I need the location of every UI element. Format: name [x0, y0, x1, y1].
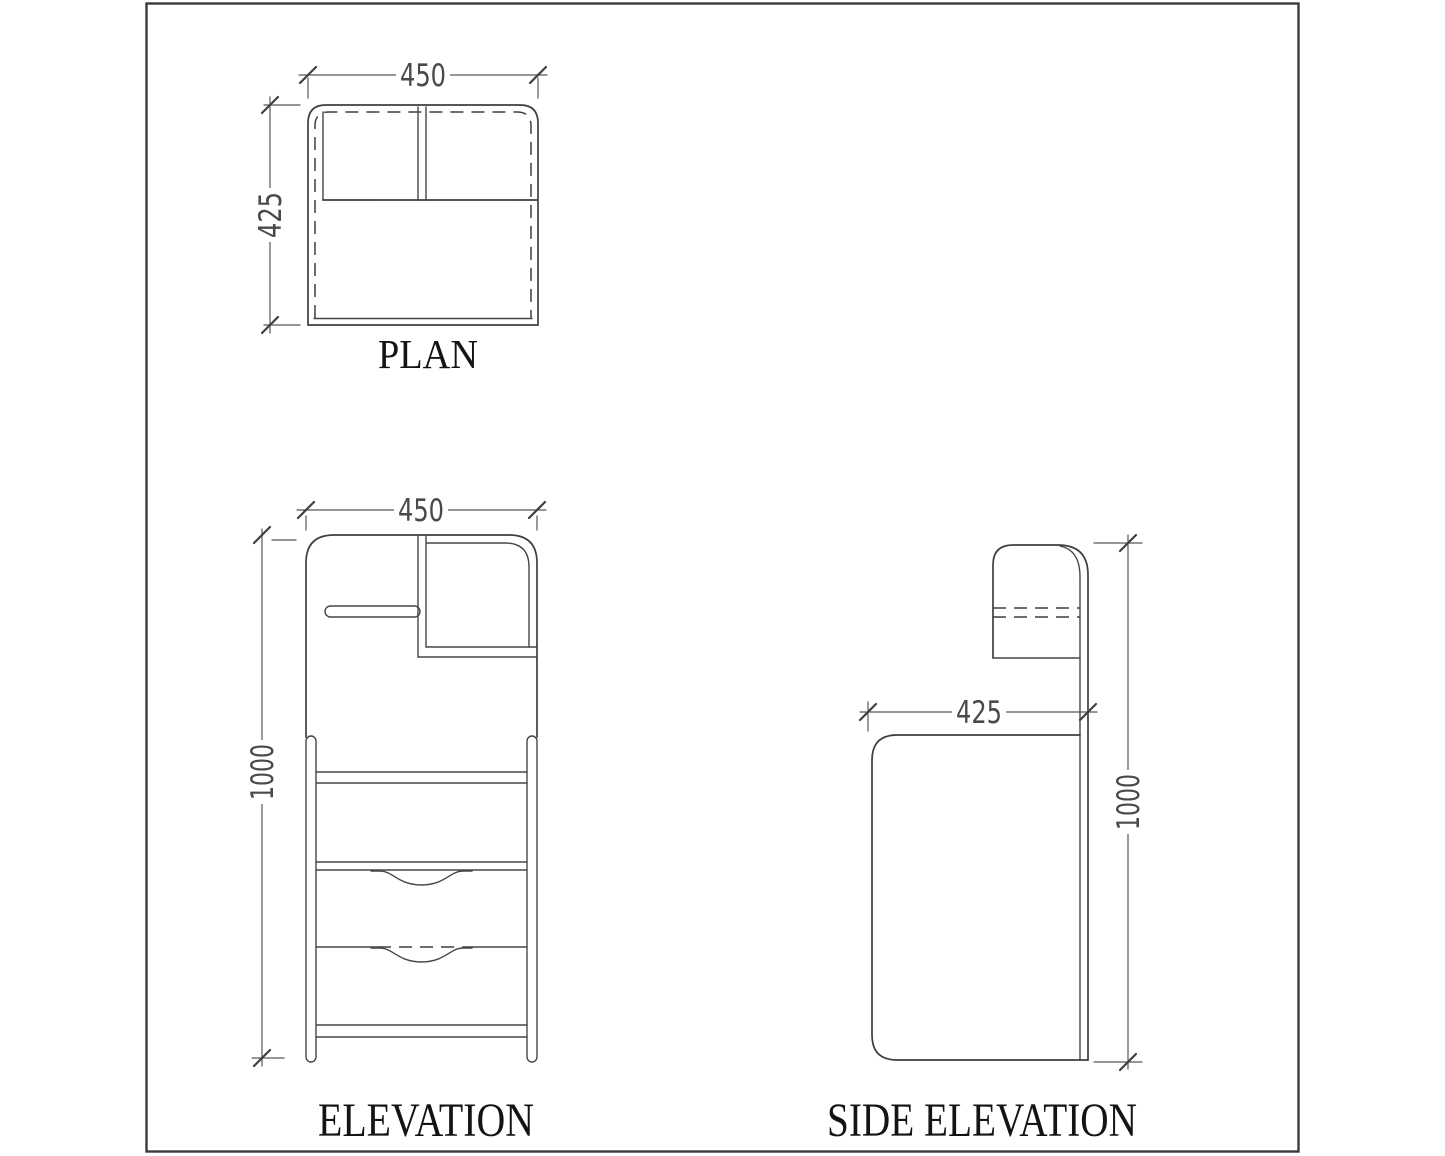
elevation-right-post [527, 736, 537, 1062]
elevation-view: 450 1000 ELEVATION [245, 493, 546, 1147]
elevation-view-label: ELEVATION [318, 1094, 534, 1147]
side-upper-box-outline [993, 545, 1088, 1060]
plan-width-dim-text: 450 [400, 58, 446, 94]
side-depth-dimension: 425 [860, 695, 1097, 731]
plan-outer-outline [308, 105, 538, 325]
plan-hidden-outline [315, 112, 531, 318]
elevation-right-box-inner [426, 543, 529, 647]
elevation-height-dimension: 1000 [245, 527, 296, 1066]
side-hidden-shelf-lines [993, 608, 1080, 617]
elevation-top-shelf [316, 772, 527, 783]
elevation-upper-outline [306, 535, 537, 737]
elevation-bottom-shelf [316, 1025, 527, 1037]
plan-centre-divider [418, 107, 426, 200]
side-lower-body-outline [872, 735, 1088, 1060]
side-elevation-view: 425 1000 SIDE ELEVATION [827, 535, 1147, 1147]
side-elevation-view-label: SIDE ELEVATION [827, 1094, 1137, 1147]
elevation-width-dim-text: 450 [398, 493, 444, 529]
elevation-height-dim-text: 1000 [245, 744, 281, 800]
plan-depth-dim-text: 425 [253, 192, 289, 238]
elevation-width-dimension: 450 [297, 493, 546, 530]
side-height-dimension: 1000 [1094, 535, 1147, 1070]
plan-view: 450 425 PLAN [253, 58, 547, 377]
elevation-left-post [306, 736, 316, 1062]
side-back-panel-inner [1060, 546, 1080, 1060]
elevation-centre-divider [418, 535, 426, 657]
elevation-right-box-bottom [418, 647, 537, 657]
drawing-sheet: 450 425 PLAN [0, 0, 1445, 1156]
side-height-dim-text: 1000 [1111, 774, 1147, 830]
elevation-pill-shelf [325, 606, 420, 617]
elevation-mid-shelf [316, 862, 527, 870]
cad-drawing-canvas: 450 425 PLAN [0, 0, 1445, 1156]
elevation-drawer1-handle [371, 871, 472, 885]
side-depth-dim-text: 425 [956, 695, 1002, 731]
plan-depth-dimension: 425 [253, 97, 300, 333]
plan-width-dimension: 450 [299, 58, 547, 98]
sheet-border-frame [147, 4, 1299, 1152]
plan-view-label: PLAN [378, 331, 478, 377]
elevation-drawer2-handle [371, 948, 472, 962]
